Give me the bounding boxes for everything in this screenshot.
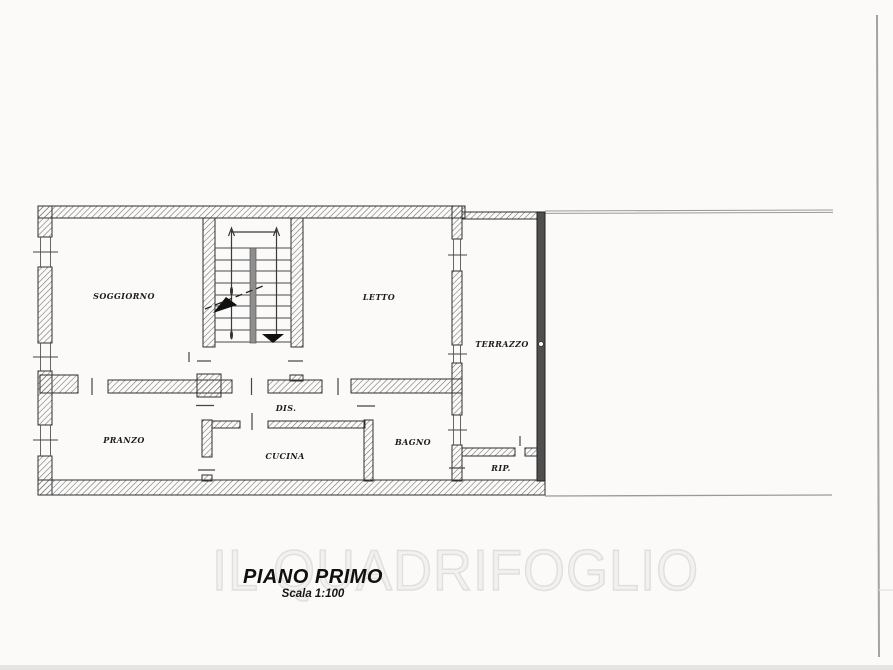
room-label-letto: LETTO (362, 292, 395, 302)
interior-walls (40, 374, 538, 481)
room-label-rip: RIP. (490, 463, 510, 473)
stair-stringer (250, 248, 256, 343)
page-bottom-edge (0, 665, 893, 670)
room-label-terrazzo: TERRAZZO (475, 339, 528, 349)
plan-title: PIANO PRIMO (163, 566, 463, 588)
room-label-soggiorno: SOGGIORNO (93, 291, 155, 301)
drainpipe-dot (539, 342, 544, 347)
room-label-bagno: BAGNO (394, 437, 431, 447)
scan-edge-lines (545, 15, 893, 657)
plan-scale: Scala 1:100 (163, 588, 463, 601)
room-label-cucina: CUCINA (265, 451, 304, 461)
room-label-dis: DIS. (275, 403, 297, 413)
scanned-floorplan-page: IL QUADRIFOGLIO (0, 0, 893, 670)
terrace-parapet-wall (537, 212, 545, 481)
room-label-pranzo: PRANZO (102, 435, 144, 445)
title-block: PIANO PRIMO Scala 1:100 (163, 566, 463, 601)
staircase (205, 228, 291, 343)
